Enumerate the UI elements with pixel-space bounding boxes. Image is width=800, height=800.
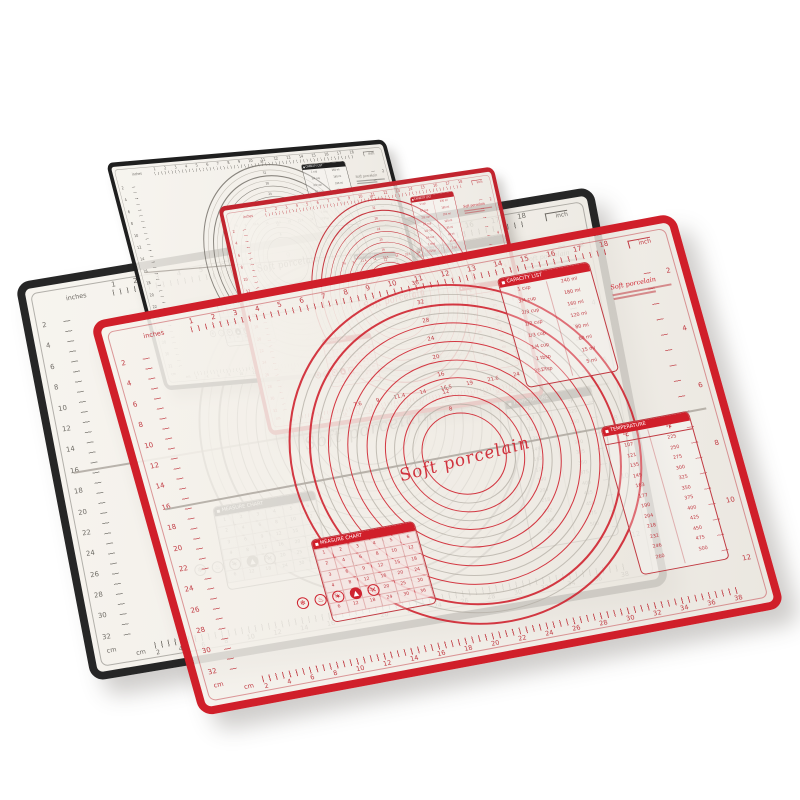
ruler-number: 7 — [321, 293, 327, 301]
ruler-number: 20 — [172, 542, 193, 552]
ruler-number: 12 — [62, 423, 83, 433]
ruler-number: 4 — [287, 678, 293, 685]
grid-cell: 24 — [381, 592, 400, 605]
ruler-number: 18 — [463, 645, 473, 653]
ring-size-label: 32 — [417, 299, 425, 306]
ruler-number: 1 — [188, 318, 194, 326]
ruler-number: 26 — [572, 624, 582, 632]
ruler-number: 24 — [545, 629, 555, 637]
ring-size-label: 20 — [432, 354, 440, 361]
ring-size-label: 8 — [448, 406, 453, 412]
ruler-number: 6 — [238, 253, 248, 258]
ruler-number: 18 — [167, 522, 188, 532]
grid-cell: 30 — [398, 589, 417, 602]
ring-size-label: 20 — [379, 238, 383, 242]
inches-label: inches — [131, 171, 142, 176]
ruler-number: 8 — [700, 438, 720, 449]
ring-size-label: 36 — [411, 280, 419, 287]
ruler-number: 14 — [66, 444, 87, 454]
ruler-number: 8 — [332, 670, 338, 677]
ruler-number: 20 — [78, 507, 99, 517]
ruler-number: 28 — [94, 590, 115, 600]
ruler-number: 30 — [626, 614, 636, 622]
ruler-number: 28 — [599, 619, 609, 627]
ruler-number: 24 — [86, 548, 107, 558]
ruler-number: 38 — [734, 594, 744, 602]
ruler-number: 6 — [684, 381, 704, 392]
ring-size-label: 12 — [442, 389, 450, 396]
ring-size-label: 32 — [263, 171, 267, 175]
ruler-number: 4 — [46, 340, 67, 350]
ring-size-label: 24 — [427, 336, 435, 343]
ruler-number: 12 — [382, 660, 392, 668]
ruler-number: 8 — [131, 221, 141, 226]
ring-size-label: 28 — [265, 182, 269, 186]
ruler-number: 2 — [121, 186, 131, 191]
ruler-number: 2 — [42, 319, 63, 329]
ruler-number: 22 — [82, 527, 103, 537]
ruler-number: 10 — [243, 277, 253, 282]
ring-size-label: 12 — [384, 258, 388, 262]
ring-size-label: 32 — [372, 206, 376, 210]
ruler-number: 18 — [74, 486, 95, 496]
product-photo: 123456789101112131415161718inchesinch246… — [0, 0, 800, 800]
ruler-number: 16 — [436, 650, 446, 658]
cm-label-bottom: cm — [135, 648, 146, 657]
ruler-number: 4 — [126, 378, 147, 388]
ruler-number: 6 — [127, 210, 137, 215]
ruler-number: 2 — [121, 357, 142, 367]
flame-icon: ▲ — [348, 586, 363, 600]
ruler-number: 14 — [155, 481, 176, 491]
ruler-number: 32 — [653, 609, 663, 617]
heat-safe-icon: ♨ — [313, 593, 328, 607]
ruler-number: 2 — [156, 649, 161, 656]
ruler-number: 34 — [680, 604, 690, 612]
ruler-number: 10 — [144, 440, 165, 450]
ruler-number: 9 — [365, 285, 371, 293]
ruler-number: 1 — [111, 281, 117, 289]
ruler-number: 30 — [98, 611, 119, 621]
ruler-number: 8 — [54, 382, 75, 392]
ruler-number: 14 — [409, 655, 419, 663]
ruler-number: 14 — [140, 257, 150, 262]
ruler-number: 36 — [707, 599, 717, 607]
ruler-number: 8 — [343, 289, 349, 297]
ruler-number: 28 — [196, 625, 217, 635]
ruler-number: 2 — [264, 683, 270, 690]
ring-size-label: 28 — [374, 217, 378, 221]
ruler-number: 26 — [190, 604, 211, 614]
ruler-number: 12 — [149, 460, 170, 470]
ruler-number: 18 — [146, 281, 156, 286]
snowflake-icon: ❄ — [295, 596, 310, 610]
ruler-number: 10 — [134, 233, 144, 238]
ruler-number: 4 — [124, 198, 134, 203]
ruler-number: 20 — [491, 640, 501, 648]
ruler-number: 10 — [58, 403, 79, 413]
inch-corner-label: inch — [363, 151, 375, 156]
ring-size-label: 28 — [422, 317, 430, 324]
ruler-number: 3 — [232, 310, 238, 318]
ruler-number: 20 — [149, 293, 159, 298]
ruler-number: 10 — [355, 665, 365, 673]
ruler-number: 24 — [184, 584, 205, 594]
ring-size-label: 36 — [260, 160, 264, 164]
ruler-number: 4 — [490, 230, 499, 236]
ruler-number: 26 — [90, 569, 111, 579]
ruler-number: 4 — [254, 306, 260, 314]
ruler-number: 8 — [240, 265, 250, 270]
ruler-number: 4 — [235, 241, 245, 246]
ruler-number: 5 — [277, 302, 283, 310]
ruler-number: 6 — [299, 297, 305, 305]
ruler-number: 6 — [132, 398, 153, 408]
ring-size-label: 24 — [377, 228, 381, 232]
ruler-number: 22 — [178, 563, 199, 573]
ruler-number: 6 — [310, 674, 316, 681]
grid-cell: 36 — [414, 586, 433, 599]
cm-label-left: cm — [106, 645, 117, 654]
ruler-number: 2 — [232, 229, 242, 234]
ruler-number: 2 — [210, 314, 216, 322]
ruler-number: 4 — [668, 324, 688, 335]
ruler-number: 6 — [50, 361, 71, 371]
ruler-number: 12 — [137, 245, 147, 250]
ring-size-label: 24 — [268, 193, 272, 197]
ruler-number: 22 — [518, 634, 528, 642]
ruler-number: 30 — [201, 645, 222, 655]
ring-size-label: 16 — [381, 248, 385, 252]
ring-size-label: 16 — [437, 371, 445, 378]
ring-size-label: 36 — [369, 195, 373, 199]
ruler-number: 8 — [138, 419, 159, 429]
ruler-number: 10 — [716, 496, 736, 507]
star-icon: ✶ — [331, 590, 346, 604]
